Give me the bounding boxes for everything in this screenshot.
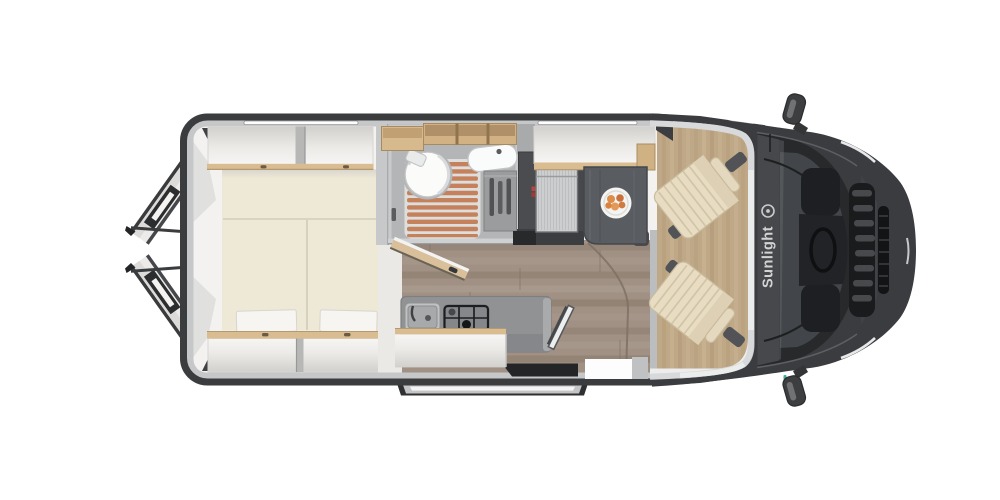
svg-text:Sunlight: Sunlight bbox=[761, 226, 777, 288]
